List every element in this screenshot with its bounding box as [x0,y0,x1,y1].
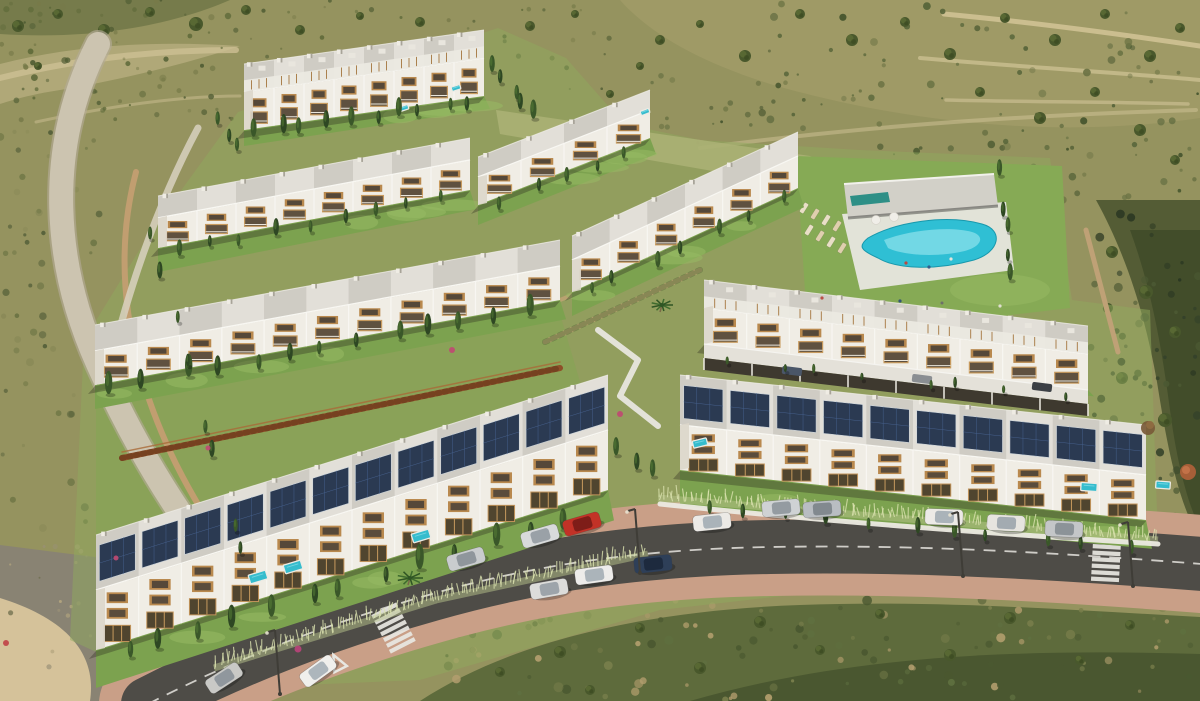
person-figure [949,257,952,260]
aerial-site-render: Aerial 3D architectural rendering of a M… [0,0,1200,701]
parasol [872,216,881,225]
parasol [890,213,899,222]
person-figure [904,261,907,264]
scene-canvas [0,0,1200,701]
person-figure [927,265,930,268]
